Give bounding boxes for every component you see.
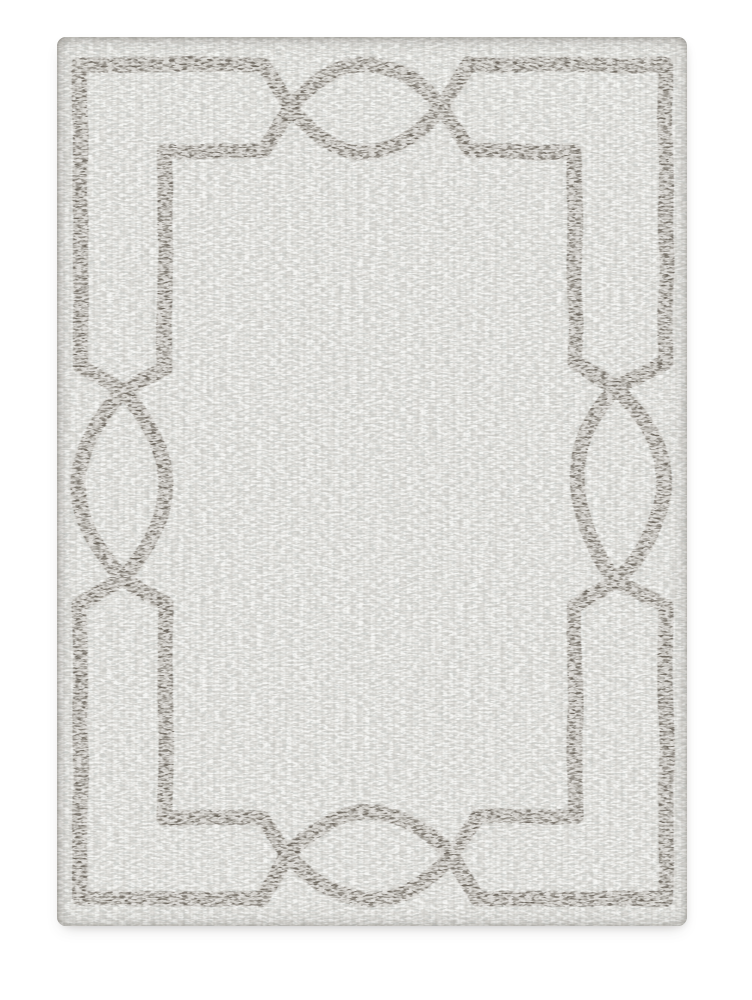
- rug-texture-noise-dark: [57, 37, 687, 926]
- rug-image: [57, 37, 687, 926]
- photo-canvas: [0, 0, 752, 1000]
- rug-graphic: [57, 37, 687, 926]
